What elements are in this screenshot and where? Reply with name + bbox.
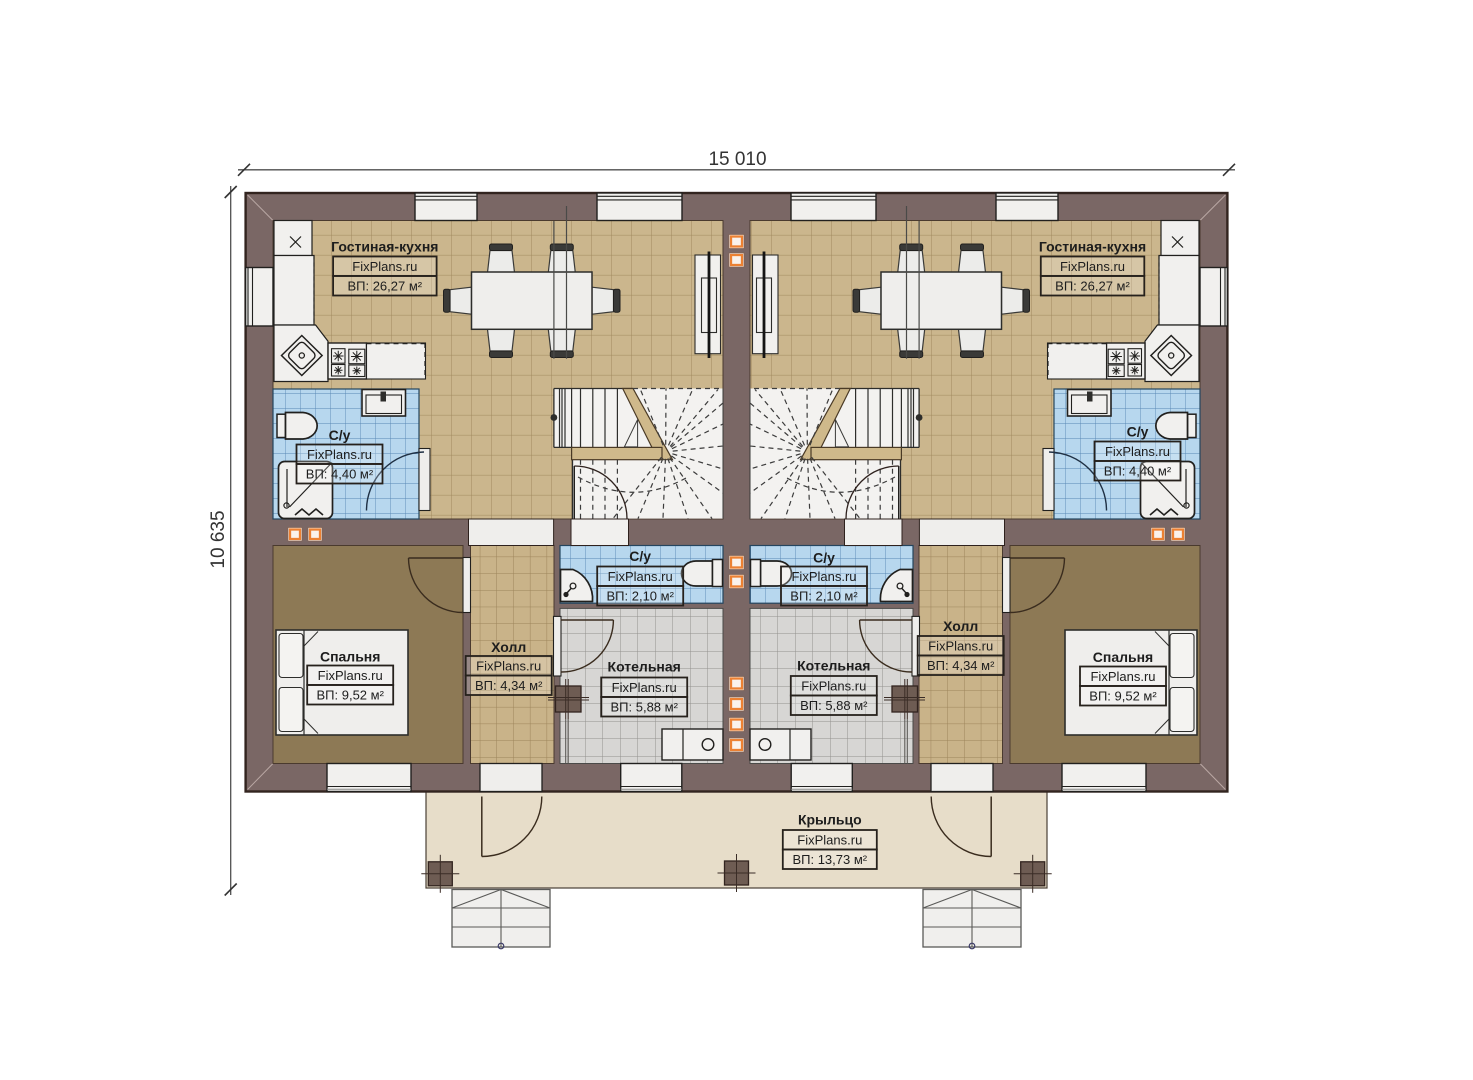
svg-text:Котельная: Котельная xyxy=(608,659,681,675)
svg-text:Холл: Холл xyxy=(491,639,526,655)
svg-text:ВП: 2,10 м²: ВП: 2,10 м² xyxy=(606,589,674,604)
svg-text:FixPlans.ru: FixPlans.ru xyxy=(797,833,862,848)
svg-text:ВП: 4,40 м²: ВП: 4,40 м² xyxy=(306,467,374,482)
svg-text:15 010: 15 010 xyxy=(708,149,766,170)
svg-text:ВП: 13,73 м²: ВП: 13,73 м² xyxy=(792,852,867,867)
svg-text:FixPlans.ru: FixPlans.ru xyxy=(318,668,383,683)
svg-text:Котельная: Котельная xyxy=(797,658,870,674)
svg-text:FixPlans.ru: FixPlans.ru xyxy=(928,639,993,654)
svg-text:С/у: С/у xyxy=(813,550,835,566)
svg-text:FixPlans.ru: FixPlans.ru xyxy=(791,569,856,584)
svg-text:FixPlans.ru: FixPlans.ru xyxy=(476,659,541,674)
svg-text:ВП: 9,52 м²: ВП: 9,52 м² xyxy=(1089,689,1157,704)
svg-text:FixPlans.ru: FixPlans.ru xyxy=(608,569,673,584)
svg-text:Холл: Холл xyxy=(943,618,978,634)
svg-text:ВП: 4,34 м²: ВП: 4,34 м² xyxy=(475,678,543,693)
svg-text:С/у: С/у xyxy=(329,427,351,443)
svg-text:ВП: 5,88 м²: ВП: 5,88 м² xyxy=(610,700,678,715)
svg-text:Спальня: Спальня xyxy=(1093,649,1153,665)
svg-text:FixPlans.ru: FixPlans.ru xyxy=(1060,259,1125,274)
svg-text:FixPlans.ru: FixPlans.ru xyxy=(1090,669,1155,684)
svg-text:Крыльцо: Крыльцо xyxy=(798,812,862,828)
svg-text:ВП: 4,34 м²: ВП: 4,34 м² xyxy=(927,658,995,673)
svg-text:FixPlans.ru: FixPlans.ru xyxy=(801,679,866,694)
svg-text:FixPlans.ru: FixPlans.ru xyxy=(307,447,372,462)
svg-text:ВП: 2,10 м²: ВП: 2,10 м² xyxy=(790,589,858,604)
svg-text:ВП: 26,27 м²: ВП: 26,27 м² xyxy=(347,279,422,294)
svg-text:ВП: 4,40 м²: ВП: 4,40 м² xyxy=(1104,464,1172,479)
svg-text:ВП: 5,88 м²: ВП: 5,88 м² xyxy=(800,698,868,713)
svg-text:Гостиная-кухня: Гостиная-кухня xyxy=(1039,239,1146,255)
svg-text:FixPlans.ru: FixPlans.ru xyxy=(612,680,677,695)
svg-text:С/у: С/у xyxy=(629,548,651,564)
svg-text:10 635: 10 635 xyxy=(208,510,229,568)
svg-text:ВП: 26,27 м²: ВП: 26,27 м² xyxy=(1055,279,1130,294)
svg-text:FixPlans.ru: FixPlans.ru xyxy=(1105,444,1170,459)
svg-text:ВП: 9,52 м²: ВП: 9,52 м² xyxy=(316,688,384,703)
svg-text:Спальня: Спальня xyxy=(320,649,380,665)
svg-text:С/у: С/у xyxy=(1127,424,1149,440)
svg-text:FixPlans.ru: FixPlans.ru xyxy=(352,259,417,274)
svg-text:Гостиная-кухня: Гостиная-кухня xyxy=(331,239,438,255)
